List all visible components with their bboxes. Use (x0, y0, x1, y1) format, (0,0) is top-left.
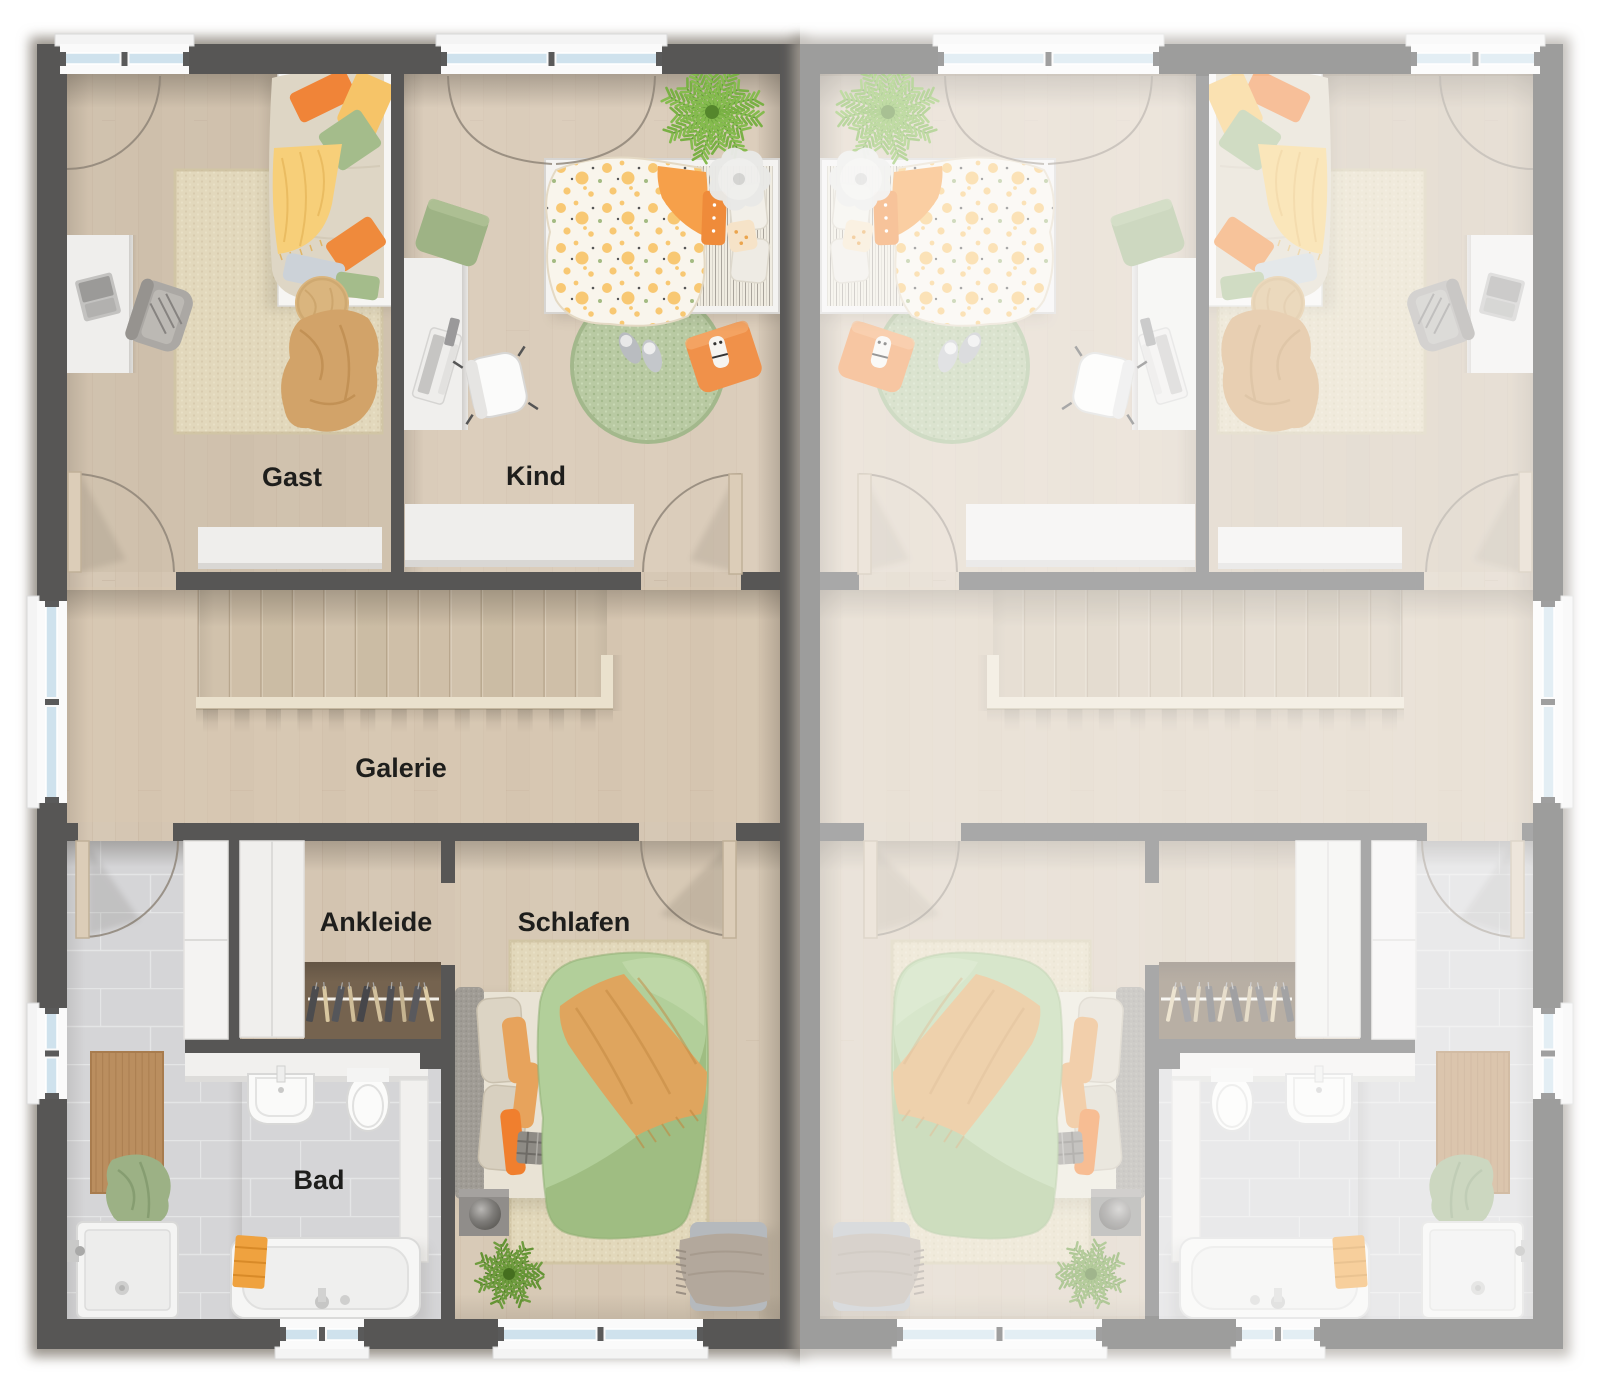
svg-text:Gast: Gast (262, 462, 322, 492)
svg-text:Schlafen: Schlafen (518, 907, 631, 937)
svg-text:Galerie: Galerie (355, 753, 447, 783)
svg-text:Ankleide: Ankleide (320, 907, 433, 937)
svg-text:Kind: Kind (506, 461, 566, 491)
svg-text:Bad: Bad (293, 1165, 344, 1195)
